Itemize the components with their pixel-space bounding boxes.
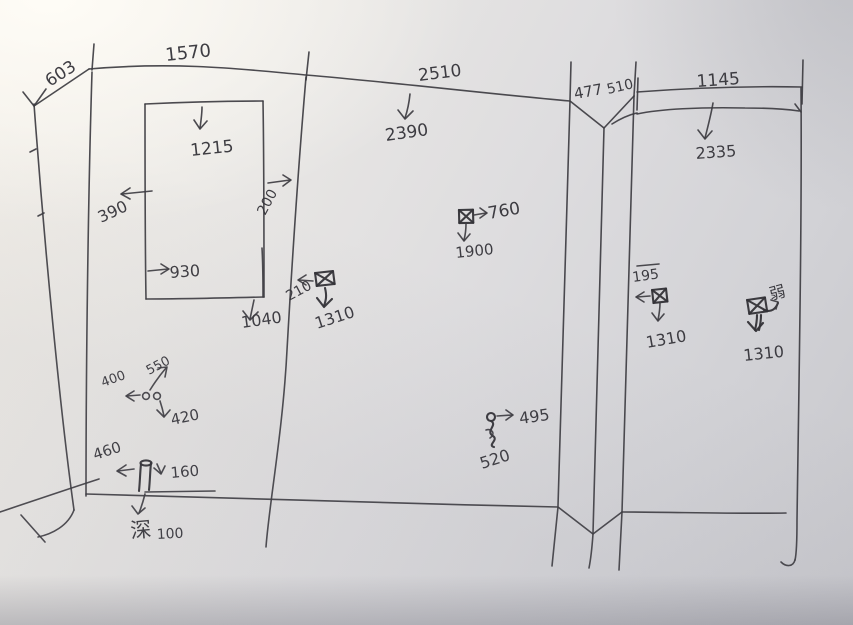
arrow-1310a-down	[317, 288, 332, 307]
sketch-canvas: 603 1570 2510 2390 477 510 1145 2335 121…	[0, 0, 853, 625]
arrow-420-down	[157, 401, 170, 417]
v-notch	[558, 507, 622, 534]
dim-label-1310d: 1310	[742, 342, 784, 365]
dim-label-603: 603	[42, 57, 80, 91]
dim-label-1310a: 1310	[312, 302, 357, 333]
stroke	[619, 512, 622, 570]
tick	[92, 44, 94, 70]
stem	[122, 191, 152, 194]
tick	[570, 62, 571, 100]
circle	[487, 413, 495, 421]
dim-label-1570: 1570	[164, 40, 212, 66]
dim-label-2510: 2510	[417, 61, 462, 86]
arrowhead-icon	[132, 506, 145, 514]
dim-label-160: 160	[170, 462, 200, 482]
stem	[324, 288, 326, 306]
arrow-200-right	[268, 175, 291, 186]
dim-label-460: 460	[91, 438, 124, 464]
stem	[637, 296, 650, 297]
dim-label-1310c: 1310	[644, 326, 687, 352]
arrow-495-right	[497, 410, 513, 420]
tick	[637, 78, 638, 110]
cross	[652, 288, 667, 303]
dim-label-420: 420	[169, 405, 201, 429]
dim-label-200: 200	[254, 187, 281, 218]
stroke	[262, 248, 263, 297]
wall-line	[593, 128, 604, 533]
dim-label-520: 520	[477, 445, 512, 473]
arrow-1310c-down	[652, 303, 664, 321]
stem	[755, 315, 757, 330]
dim-label-760: 760	[486, 199, 521, 224]
pipe-side	[149, 463, 151, 490]
arrow-460-left	[117, 465, 134, 476]
dim-label-550: 550	[144, 354, 173, 379]
dim-label-930: 930	[169, 261, 201, 282]
cross	[458, 209, 474, 224]
stroke	[34, 104, 74, 510]
arrow-760-right	[474, 208, 487, 218]
floor-pipe-icon	[139, 460, 152, 491]
water-point-icon	[486, 413, 495, 447]
stroke	[622, 512, 786, 513]
socket-icon	[315, 271, 335, 286]
dim-label-1900: 1900	[455, 240, 495, 262]
twin-outlet-circles-icon	[143, 393, 161, 400]
arrow-2390-down	[398, 94, 413, 119]
socket-icon	[747, 297, 767, 314]
arrow-160-down	[154, 464, 165, 474]
tick	[145, 491, 215, 492]
weak-current-label: 弱	[767, 281, 787, 303]
dim-label-2390: 2390	[384, 120, 430, 146]
dim-label-1145: 1145	[696, 69, 741, 92]
dim-label-2335: 2335	[695, 141, 737, 163]
hook	[781, 560, 795, 566]
arrow-depth-down	[132, 494, 145, 514]
dim-label-100: 100	[156, 526, 184, 543]
bottom-floor-line	[0, 479, 786, 570]
dim-label-477: 477	[573, 80, 604, 103]
wall-line	[86, 72, 92, 496]
socket-icon	[652, 288, 667, 303]
dim-label-195: 195	[631, 266, 660, 286]
circle	[143, 393, 150, 400]
dim-label-210: 210	[283, 278, 314, 305]
arrow-930-right	[148, 264, 169, 274]
left-edge-line	[21, 89, 74, 542]
stem	[464, 224, 466, 240]
arrow-1900-down	[458, 224, 470, 241]
wall-line	[622, 96, 634, 512]
dim-label-400: 400	[99, 368, 127, 391]
stroke	[589, 534, 593, 568]
stroke	[145, 101, 263, 104]
stroke	[0, 479, 99, 512]
stem	[658, 303, 660, 320]
tick	[802, 60, 803, 104]
wall-top-edge	[637, 108, 799, 114]
dim-label-510: 510	[605, 76, 635, 98]
arrow-390-left	[121, 188, 152, 199]
stroke	[86, 494, 558, 507]
top-right-dimension-line	[612, 60, 803, 124]
stroke	[552, 507, 558, 566]
stroke	[145, 104, 146, 299]
depth-char-label: 深	[129, 517, 152, 543]
stem	[200, 107, 202, 128]
dim-label-1215: 1215	[189, 137, 234, 161]
wall-line	[795, 88, 801, 560]
stroke	[21, 515, 45, 542]
dim-label-1040: 1040	[240, 307, 283, 331]
photographed-sketch: 603 1570 2510 2390 477 510 1145 2335 121…	[0, 0, 853, 625]
wall-line	[558, 101, 570, 506]
stroke	[38, 510, 74, 537]
stroke	[89, 66, 570, 101]
dim-label-390: 390	[95, 196, 131, 226]
stroke	[146, 297, 264, 299]
pipe-side	[139, 464, 141, 491]
arrow-1215-down	[194, 107, 207, 129]
arrow-400-left	[126, 391, 140, 401]
stem	[497, 415, 512, 416]
circle	[154, 393, 161, 400]
arrow-1310d-down	[748, 315, 763, 331]
dim-label-495: 495	[518, 405, 551, 428]
socket-icon	[458, 209, 474, 224]
stem	[127, 395, 140, 396]
